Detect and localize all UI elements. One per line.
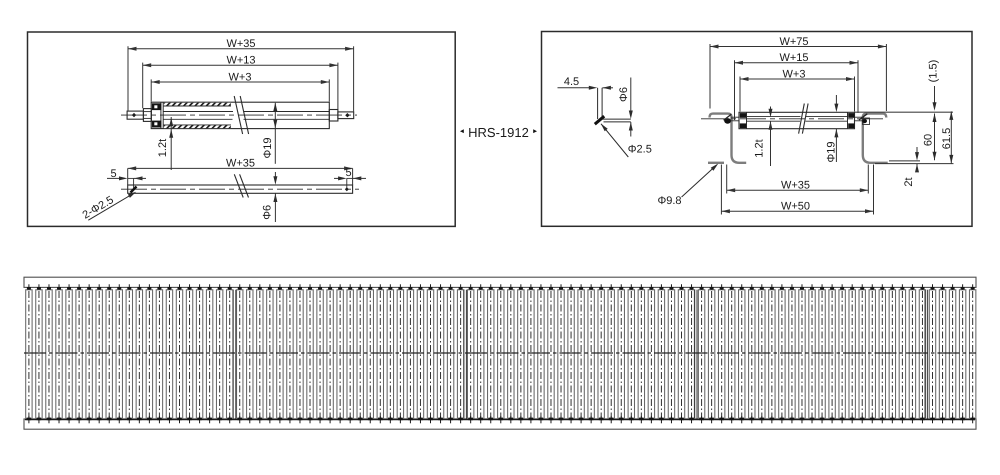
svg-text:Φ2.5: Φ2.5 xyxy=(628,143,652,155)
svg-text:(1.5): (1.5) xyxy=(928,60,940,83)
svg-text:W+35: W+35 xyxy=(781,180,810,192)
svg-text:60: 60 xyxy=(922,134,934,146)
svg-text:1.2t: 1.2t xyxy=(157,139,169,157)
svg-text:W+35: W+35 xyxy=(226,38,255,50)
svg-text:W+3: W+3 xyxy=(229,71,252,83)
svg-text:Φ6: Φ6 xyxy=(618,87,630,102)
svg-text:HRS-1912: HRS-1912 xyxy=(468,125,529,140)
svg-text:5: 5 xyxy=(110,168,116,180)
svg-text:W+3: W+3 xyxy=(783,68,806,80)
svg-text:1.2t: 1.2t xyxy=(754,139,766,157)
svg-text:5: 5 xyxy=(345,167,351,179)
svg-text:Φ19: Φ19 xyxy=(262,137,274,158)
svg-text:Φ9.8: Φ9.8 xyxy=(657,195,681,207)
svg-text:2t: 2t xyxy=(903,177,915,186)
svg-text:W+50: W+50 xyxy=(781,201,810,213)
svg-text:W+15: W+15 xyxy=(779,52,808,64)
svg-text:W+75: W+75 xyxy=(779,36,808,48)
svg-text:W+35: W+35 xyxy=(226,158,255,170)
svg-text:4.5: 4.5 xyxy=(564,76,579,88)
svg-text:61.5: 61.5 xyxy=(941,128,953,149)
svg-text:Φ19: Φ19 xyxy=(825,141,837,162)
svg-text:Φ6: Φ6 xyxy=(262,205,274,220)
svg-text:W+13: W+13 xyxy=(226,55,255,67)
